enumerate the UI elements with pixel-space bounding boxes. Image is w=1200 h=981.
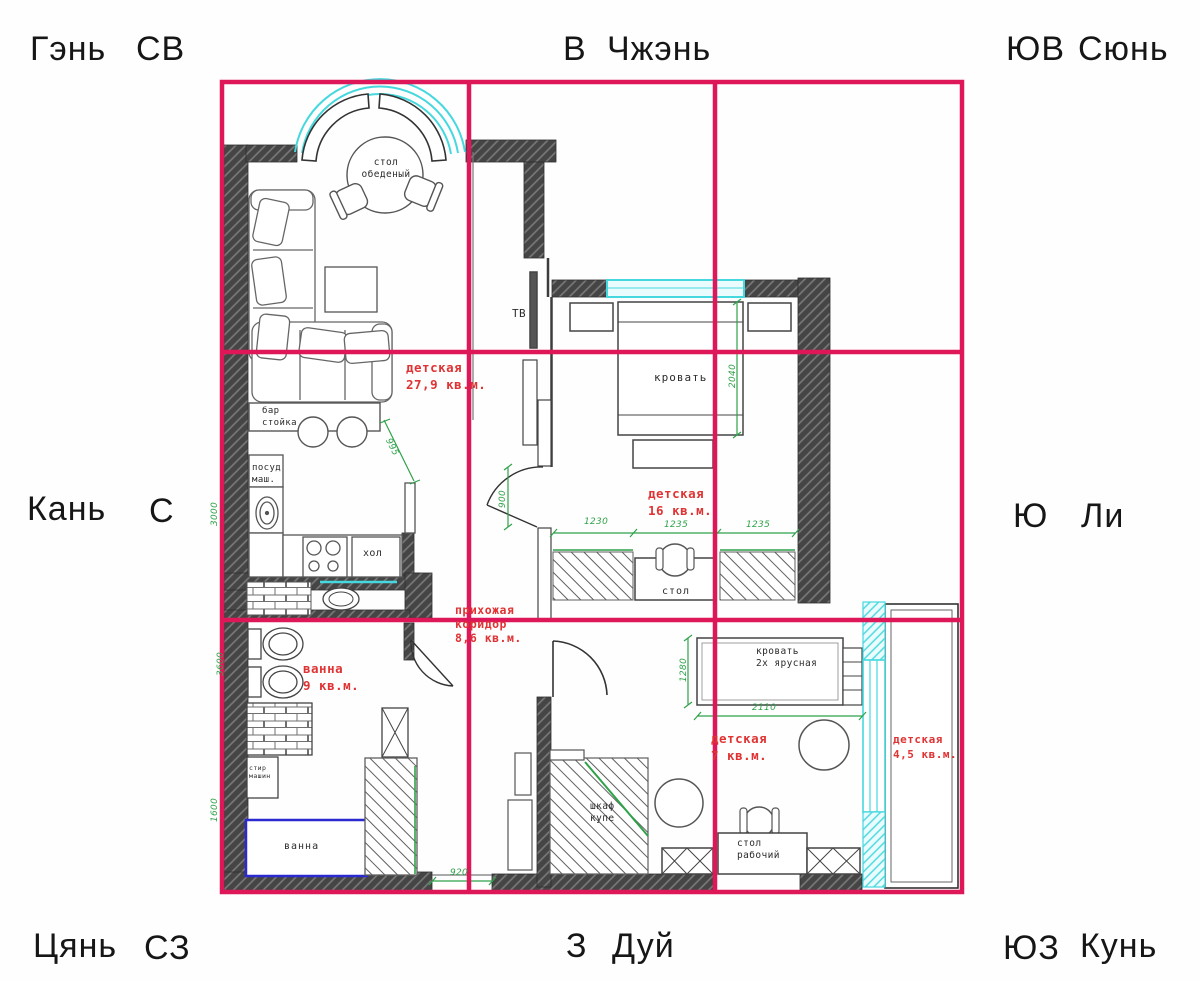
wardrobe-label: шкаф купе <box>590 801 614 826</box>
fridge-label: хол <box>363 547 382 560</box>
bedroom-door <box>487 467 543 527</box>
closet-hatched <box>720 552 795 600</box>
bagua-label-zhen: Чжэнь <box>607 28 711 71</box>
wall-bedroom-top-left <box>552 280 607 297</box>
bed-bench <box>633 440 713 468</box>
balcony-window <box>863 660 885 812</box>
desk-chair <box>659 544 691 576</box>
tv-panel <box>530 272 537 348</box>
dim-3000: 3000 <box>210 502 221 526</box>
feng-shui-floor-plan: Гэнь СВ В Чжэнь ЮВ Сюнь Кань С Ю Ли Цянь… <box>0 0 1200 981</box>
chair-circle <box>655 779 703 827</box>
room-label-bathroom: ванна 9 кв.м. <box>303 661 359 695</box>
dim-2040: 2040 <box>728 364 739 388</box>
wall-bottom-right <box>800 874 862 892</box>
work-desk-label: стол рабочий <box>737 838 780 863</box>
linen-closet <box>365 758 417 875</box>
dining-table-label: стол обеденый <box>357 157 415 182</box>
room-label-kids: детская 7 кв.м. <box>711 731 767 765</box>
bedroom-furniture <box>487 272 795 620</box>
dim-920: 920 <box>450 868 468 879</box>
bagua-label-yuv: ЮВ <box>1006 28 1065 71</box>
closet-hatched <box>553 552 633 600</box>
tile-block <box>247 582 311 615</box>
nightstand <box>570 303 613 331</box>
dim-1230: 1230 <box>584 517 608 528</box>
bagua-label-li: Ли <box>1081 495 1124 538</box>
tv-label: ТВ <box>512 307 526 321</box>
wall-hall-column <box>537 697 551 887</box>
radiator-box <box>807 848 860 874</box>
wall-top-entry <box>466 140 556 162</box>
bagua-label-dui: Дуй <box>612 925 675 968</box>
walls <box>224 140 862 892</box>
balcony-wall-block <box>863 812 885 887</box>
bagua-label-gen: Гэнь <box>30 28 106 71</box>
dim-900: 900 <box>498 490 509 508</box>
wall-bedroom-right <box>798 278 830 603</box>
dim-1235-b: 1235 <box>746 520 770 531</box>
radiator-box <box>662 848 713 874</box>
hall-cabinet <box>538 528 551 620</box>
dim-1235-a: 1235 <box>664 520 688 531</box>
bagua-label-z: З <box>566 925 588 968</box>
room-label-bedroom: детская 16 кв.м. <box>648 486 712 520</box>
floor-plan-drawing <box>0 0 1200 981</box>
bedroom-desk-label: стол <box>662 585 690 598</box>
hall-door <box>553 641 607 697</box>
bagua-label-yuz: ЮЗ <box>1003 927 1060 970</box>
bagua-label-v: В <box>563 28 587 71</box>
wall-left <box>224 145 248 875</box>
dim-3600: 3600 <box>216 652 227 676</box>
toilet-tank <box>248 629 261 659</box>
hall-shelf <box>550 750 584 760</box>
bed-label: кровать <box>654 371 707 385</box>
coffee-table <box>325 267 377 312</box>
toilet-tank <box>248 667 261 697</box>
wall-bottom-middle <box>492 874 714 892</box>
hall-cabinet <box>538 400 551 466</box>
bar-label: бар стойка <box>262 406 297 429</box>
bagua-label-kun: Кунь <box>1080 925 1157 968</box>
bagua-label-s: С <box>149 490 175 533</box>
hall-wardrobe <box>508 641 648 874</box>
bar-stool <box>337 417 367 447</box>
bar-stool <box>298 417 328 447</box>
bunk-bed-label: кровать 2х ярусная <box>756 646 817 671</box>
bagua-label-sv: СВ <box>136 28 185 71</box>
hall-shelf <box>515 753 531 795</box>
thin-walls <box>432 152 552 875</box>
wall-kitchen-stub <box>402 533 414 575</box>
wall-entry-vertical <box>524 162 544 258</box>
kitchen-shelf <box>405 483 415 533</box>
dim-2110: 2110 <box>752 703 776 714</box>
washer-label: стир машин <box>249 764 271 781</box>
hall-shelf <box>508 800 532 870</box>
wall-top-left <box>246 145 297 162</box>
bagua-label-sz: СЗ <box>144 927 191 970</box>
wall-bedroom-top-right <box>744 280 798 297</box>
bagua-label-yu: Ю <box>1013 495 1048 538</box>
bathroom-door <box>411 640 453 686</box>
bagua-label-qian: Цянь <box>33 925 117 968</box>
tile-block <box>247 703 312 755</box>
nightstand <box>748 303 791 331</box>
balcony-wall-block <box>863 602 885 660</box>
dishwasher-label: посуд маш. <box>252 463 281 486</box>
dim-1280: 1280 <box>679 658 690 682</box>
hall-cabinet <box>523 360 537 445</box>
bagua-label-xun: Сюнь <box>1078 28 1169 71</box>
room-label-balcony: детская 4,5 кв.м. <box>893 733 957 763</box>
bagua-label-kan: Кань <box>27 488 106 531</box>
room-label-living: детская 27,9 кв.м. <box>406 360 486 394</box>
dim-1600: 1600 <box>210 798 221 822</box>
chair-circle <box>799 720 849 770</box>
room-label-hallway: прихожая коридор 8,6 кв.м. <box>455 604 522 645</box>
bathtub-label: ванна <box>284 840 319 853</box>
